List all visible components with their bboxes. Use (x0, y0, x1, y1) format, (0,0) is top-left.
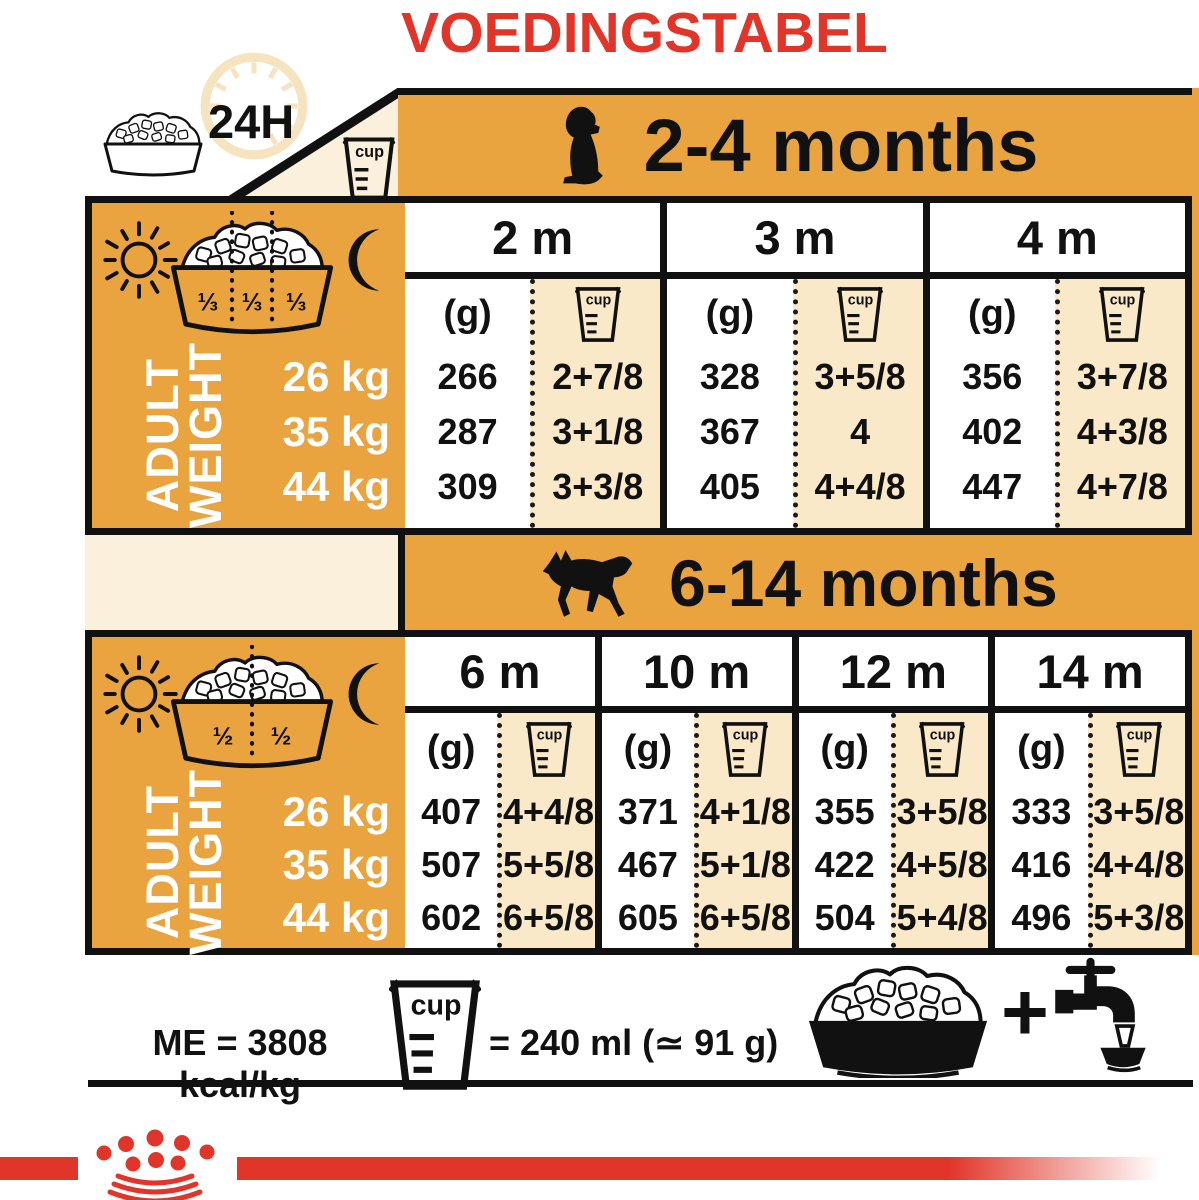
adult-weight-value: 26 kg (220, 785, 390, 838)
month-column: 6 m(g)4075076024+4/85+5/86+5/8 (405, 637, 595, 948)
cups-subcolumn: 4+1/85+1/86+5/8 (694, 713, 791, 948)
cups-value: 3+5/8 (896, 785, 988, 838)
columns-2-4-months: 2 m(g)2662873092+7/83+1/83+3/83 m(g)3283… (405, 203, 1192, 535)
cups-value: 3+1/8 (535, 404, 660, 459)
measuring-cup-icon (389, 977, 481, 1091)
adult-weight-value: 35 kg (220, 404, 390, 459)
grams-value: 602 (405, 891, 497, 944)
cups-subcolumn: 3+5/84+4/85+3/8 (1088, 713, 1185, 948)
grams-subcolumn: (g)355422504 (799, 713, 891, 948)
cups-value: 5+4/8 (896, 891, 988, 944)
divider (88, 1080, 1193, 1087)
fraction-label: ⅓ (242, 289, 263, 316)
fraction-label: ⅓ (197, 289, 218, 316)
left-panel-2-4-months: ⅓ ⅓ ⅓ ADULT WEIGHT 26 kg35 kg44 kg (85, 203, 405, 535)
cups-value: 4+4/8 (798, 459, 923, 514)
month-header-label: 2 m (405, 203, 660, 279)
divider (85, 630, 405, 637)
grams-value: 416 (995, 838, 1087, 891)
cups-subcolumn: 3+5/844+4/8 (793, 279, 923, 528)
age-header-2-4-months: 2-4 months (398, 88, 1192, 203)
grams-value: 422 (799, 838, 891, 891)
month-header-label: 14 m (995, 637, 1185, 713)
grams-value: 333 (995, 785, 1087, 838)
month-column: 10 m(g)3714676054+1/85+1/86+5/8 (595, 637, 792, 948)
month-header-label: 10 m (602, 637, 792, 713)
grams-subcolumn: (g)328367405 (667, 279, 792, 528)
grams-value: 507 (405, 838, 497, 891)
grams-subcolumn: (g)333416496 (995, 713, 1087, 948)
grams-unit-label: (g) (995, 713, 1087, 785)
month-column: 14 m(g)3334164963+5/84+4/85+3/8 (988, 637, 1185, 948)
adult-weight-value: 35 kg (220, 838, 390, 891)
cups-value: 6+5/8 (502, 891, 594, 944)
cups-value: 2+7/8 (535, 349, 660, 404)
grams-unit-label: (g) (667, 279, 792, 349)
grams-value: 309 (405, 459, 530, 514)
month-header-label: 3 m (667, 203, 922, 279)
adult-dog-icon (539, 547, 639, 619)
column-body: (g)3554225043+5/84+5/85+4/8 (799, 713, 989, 948)
adult-weight-value: 26 kg (220, 349, 390, 404)
moon-icon (342, 660, 394, 728)
month-header-label: 12 m (799, 637, 989, 713)
red-stripe (237, 1157, 1199, 1180)
cups-value: 6+5/8 (699, 891, 791, 944)
month-header-label: 4 m (930, 203, 1185, 279)
moon-icon (342, 226, 394, 294)
grams-subcolumn: (g)266287309 (405, 279, 530, 528)
grams-value: 328 (667, 349, 792, 404)
food-bowl-icon (800, 962, 996, 1078)
grams-subcolumn: (g)407507602 (405, 713, 497, 948)
grams-subcolumn: (g)371467605 (602, 713, 694, 948)
column-body: (g)3714676054+1/85+1/86+5/8 (602, 713, 792, 948)
fraction-label: ½ (213, 723, 234, 750)
adult-weight-line1: ADULT (142, 757, 185, 967)
cups-value: 4+4/8 (1093, 838, 1185, 891)
grams-unit-label: (g) (405, 279, 530, 349)
measuring-cup-icon (1060, 279, 1185, 349)
grams-value: 467 (602, 838, 694, 891)
cups-subcolumn: 3+5/84+5/85+4/8 (891, 713, 988, 948)
cups-value: 3+5/8 (1093, 785, 1185, 838)
grams-value: 266 (405, 349, 530, 404)
column-body: (g)3283674053+5/844+4/8 (667, 279, 922, 528)
cups-value: 4+1/8 (699, 785, 791, 838)
cups-value: 4 (798, 404, 923, 459)
month-column: 12 m(g)3554225043+5/84+5/85+4/8 (792, 637, 989, 948)
column-body: (g)4075076024+4/85+5/86+5/8 (405, 713, 595, 948)
columns-6-14-months: 6 m(g)4075076024+4/85+5/86+5/810 m(g)371… (405, 637, 1192, 955)
food-bowl-icon (98, 100, 208, 182)
grams-value: 367 (667, 404, 792, 459)
month-column: 3 m(g)3283674053+5/844+4/8 (660, 203, 922, 528)
red-stripe (0, 1157, 78, 1180)
grams-value: 355 (799, 785, 891, 838)
cups-value: 3+3/8 (535, 459, 660, 514)
grams-value: 371 (602, 785, 694, 838)
cups-value: 4+3/8 (1060, 404, 1185, 459)
measuring-cup-icon (896, 713, 988, 785)
grams-unit-label: (g) (930, 279, 1055, 349)
month-column: 2 m(g)2662873092+7/83+1/83+3/8 (405, 203, 660, 528)
orange-edge-bleed (1192, 88, 1199, 955)
grams-value: 405 (667, 459, 792, 514)
grams-value: 356 (930, 349, 1055, 404)
cups-subcolumn: 4+4/85+5/86+5/8 (497, 713, 594, 948)
measuring-cup-icon (1093, 713, 1185, 785)
left-panel-6-14-months: ½ ½ ADULT WEIGHT 26 kg35 kg44 kg (85, 637, 405, 955)
fraction-label: ½ (271, 723, 292, 750)
grams-unit-label: (g) (405, 713, 497, 785)
cups-value: 5+3/8 (1093, 891, 1185, 944)
grams-unit-label: (g) (799, 713, 891, 785)
column-body: (g)2662873092+7/83+1/83+3/8 (405, 279, 660, 528)
grams-subcolumn: (g)356402447 (930, 279, 1055, 528)
grams-value: 504 (799, 891, 891, 944)
grams-value: 605 (602, 891, 694, 944)
puppy-icon (552, 104, 614, 188)
water-tap-icon (1048, 956, 1152, 1078)
feeding-table-page: cup (0, 0, 1199, 1200)
divider (85, 196, 405, 203)
cups-subcolumn: 3+7/84+3/84+7/8 (1055, 279, 1185, 528)
age-range-label: 2-4 months (644, 103, 1039, 188)
cups-value: 4+5/8 (896, 838, 988, 891)
age-range-label: 6-14 months (669, 545, 1058, 621)
cups-value: 4+7/8 (1060, 459, 1185, 514)
cups-subcolumn: 2+7/83+1/83+3/8 (530, 279, 660, 528)
cups-value: 3+7/8 (1060, 349, 1185, 404)
adult-weight-line1: ADULT (142, 330, 185, 540)
adult-weight-value: 44 kg (220, 459, 390, 514)
grams-value: 407 (405, 785, 497, 838)
royal-canin-crown-logo (88, 1126, 228, 1200)
grams-unit-label: (g) (602, 713, 694, 785)
cups-value: 4+4/8 (502, 785, 594, 838)
weights-list: 26 kg35 kg44 kg (220, 785, 390, 944)
weights-list: 26 kg35 kg44 kg (220, 349, 390, 514)
cup-equivalence-text: = 240 ml (≃ 91 g) (489, 1022, 778, 1064)
column-body: (g)3564024473+7/84+3/84+7/8 (930, 279, 1185, 528)
cups-value: 3+5/8 (798, 349, 923, 404)
measuring-cup-icon (798, 279, 923, 349)
adult-weight-value: 44 kg (220, 891, 390, 944)
grams-value: 287 (405, 404, 530, 459)
column-body: (g)3334164963+5/84+4/85+3/8 (995, 713, 1185, 948)
measuring-cup-icon (535, 279, 660, 349)
month-column: 4 m(g)3564024473+7/84+3/84+7/8 (923, 203, 1185, 528)
cups-value: 5+5/8 (502, 838, 594, 891)
fraction-label: ⅓ (286, 289, 307, 316)
measuring-cup-icon (341, 136, 397, 200)
metabolizable-energy-text: ME = 3808 kcal/kg (95, 1022, 385, 1106)
grams-value: 496 (995, 891, 1087, 944)
month-header-label: 6 m (405, 637, 595, 713)
cups-value: 5+1/8 (699, 838, 791, 891)
measuring-cup-icon (502, 713, 594, 785)
grams-value: 402 (930, 404, 1055, 459)
grams-value: 447 (930, 459, 1055, 514)
plus-sign: + (995, 972, 1055, 1054)
measuring-cup-icon (699, 713, 791, 785)
cream-band (85, 535, 398, 630)
age-header-6-14-months: 6-14 months (398, 535, 1192, 637)
portion-bowl-thirds-icon: ⅓ ⅓ ⅓ (162, 211, 342, 349)
